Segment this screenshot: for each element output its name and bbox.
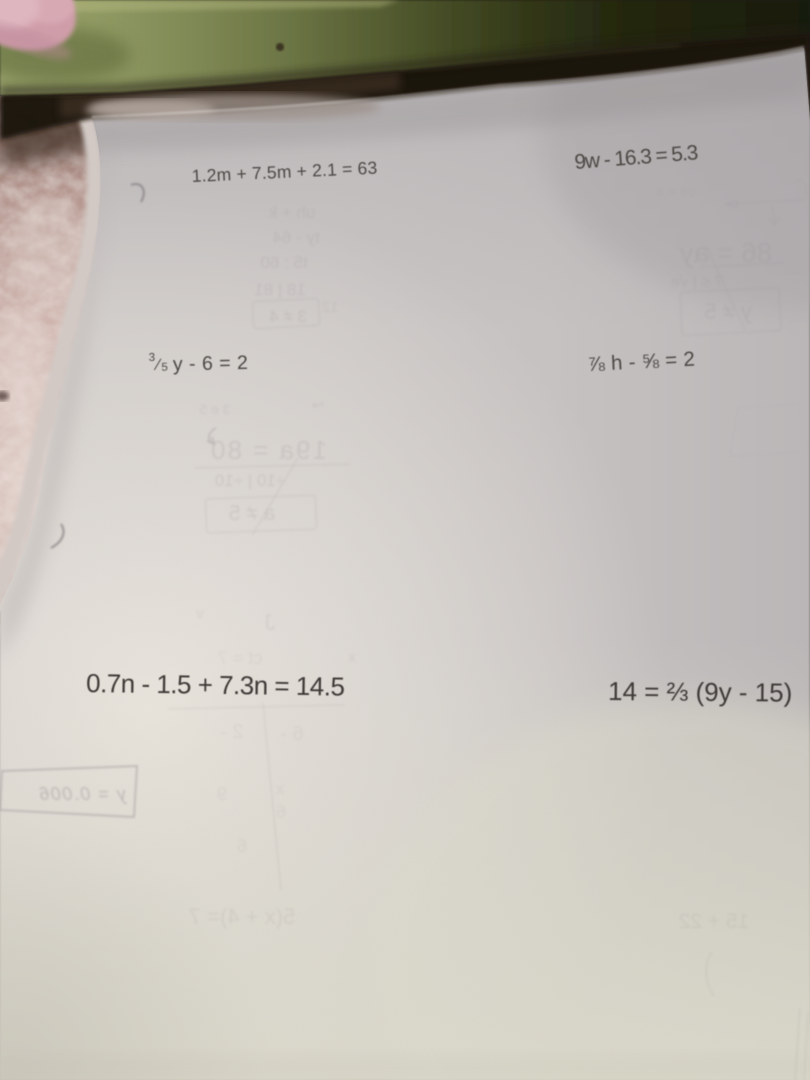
svg-text:↪: ↪ <box>312 397 325 414</box>
svg-text:y ≠ 5: y ≠ 5 <box>704 299 752 324</box>
svg-text:9: 9 <box>217 784 227 804</box>
svg-text:uh + k: uh + k <box>268 203 315 222</box>
svg-text:os = a: os = a <box>657 183 696 199</box>
svg-text:15 + 22: 15 + 22 <box>679 910 750 933</box>
svg-text:t5 : 60: t5 : 60 <box>260 253 307 272</box>
svg-text:v: v <box>196 605 204 622</box>
svg-text:6: 6 <box>276 802 286 822</box>
svg-text:x: x <box>276 779 285 799</box>
svg-text:3: 3 <box>149 352 156 364</box>
svg-text:x: x <box>348 649 356 666</box>
svg-text:y = 0.006: y = 0.006 <box>38 784 128 804</box>
svg-text:3 e 5: 3 e 5 <box>199 401 230 417</box>
svg-text:14 = ⅔ (9y - 15): 14 = ⅔ (9y - 15) <box>608 676 793 708</box>
svg-text:3 ≠ 4: 3 ≠ 4 <box>269 307 307 326</box>
svg-text:6 -: 6 - <box>280 723 303 745</box>
svg-text:ty - 64: ty - 64 <box>272 228 319 247</box>
svg-text:5(x + 4)= 7: 5(x + 4)= 7 <box>189 904 295 929</box>
svg-text:ct = 7: ct = 7 <box>218 648 263 668</box>
svg-text:a ≠ 5: a ≠ 5 <box>229 502 276 525</box>
svg-text:÷10 | ÷10: ÷10 | ÷10 <box>215 471 285 490</box>
svg-text:12: 12 <box>322 299 339 316</box>
svg-text:18 | 81: 18 | 81 <box>254 280 306 299</box>
svg-text:6: 6 <box>237 836 247 856</box>
svg-text:86 = ay: 86 = ay <box>680 237 773 268</box>
svg-text:7 ≤ | √e: 7 ≤ | √e <box>670 274 723 291</box>
svg-text:J: J <box>265 610 276 635</box>
svg-text:0.7n - 1.5 + 7.3n = 14.5: 0.7n - 1.5 + 7.3n = 14.5 <box>86 668 345 702</box>
svg-text:5: 5 <box>161 362 168 374</box>
svg-text:19a = 80: 19a = 80 <box>209 435 327 465</box>
svg-text:2 -: 2 - <box>220 721 243 743</box>
svg-text:y - 6 = 2: y - 6 = 2 <box>173 352 249 376</box>
